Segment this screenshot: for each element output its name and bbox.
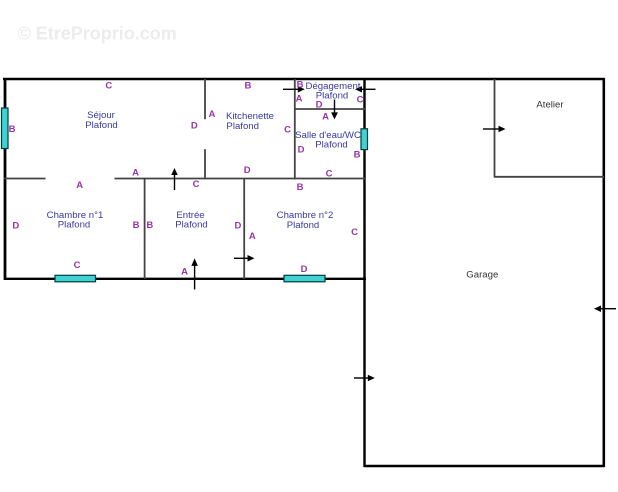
svg-text:C: C: [193, 179, 200, 190]
svg-text:Plafond: Plafond: [58, 220, 91, 231]
svg-text:C: C: [284, 124, 291, 135]
svg-text:A: A: [249, 231, 256, 242]
svg-text:B: B: [146, 220, 153, 231]
svg-text:A: A: [181, 267, 188, 278]
svg-text:Plafond: Plafond: [175, 220, 208, 231]
svg-text:Plafond: Plafond: [315, 140, 348, 151]
svg-text:B: B: [354, 150, 361, 161]
svg-text:A: A: [208, 109, 215, 120]
svg-text:B: B: [244, 80, 251, 91]
svg-text:C: C: [351, 227, 358, 238]
svg-text:Plafond: Plafond: [85, 120, 118, 131]
svg-text:Plafond: Plafond: [226, 121, 259, 132]
svg-text:A: A: [322, 112, 329, 123]
svg-text:D: D: [316, 100, 323, 111]
svg-text:D: D: [298, 145, 305, 156]
svg-text:D: D: [234, 221, 241, 232]
svg-text:D: D: [244, 165, 251, 176]
svg-text:C: C: [105, 80, 112, 91]
svg-text:A: A: [132, 167, 139, 178]
svg-text:B: B: [297, 182, 304, 193]
svg-text:B: B: [297, 80, 304, 91]
svg-text:C: C: [326, 169, 333, 180]
svg-text:A: A: [76, 180, 83, 191]
svg-text:Plafond: Plafond: [287, 220, 320, 231]
svg-text:C: C: [357, 94, 364, 105]
svg-text:D: D: [191, 120, 198, 131]
svg-text:C: C: [74, 260, 81, 271]
svg-text:Garage: Garage: [466, 270, 498, 281]
svg-text:D: D: [301, 264, 308, 275]
svg-text:Atelier: Atelier: [536, 99, 564, 110]
svg-text:D: D: [12, 221, 19, 232]
svg-text:A: A: [296, 94, 303, 105]
svg-text:B: B: [9, 124, 16, 135]
svg-text:B: B: [133, 220, 140, 231]
svg-text:© EtreProprio.com: © EtreProprio.com: [18, 24, 177, 44]
